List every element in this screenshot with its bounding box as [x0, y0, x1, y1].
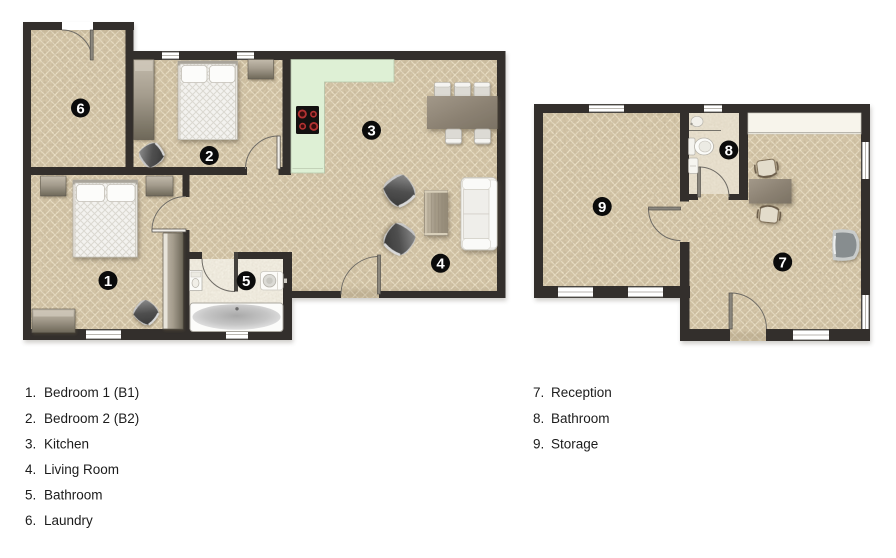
svg-text:Kitchen: Kitchen — [44, 436, 89, 451]
svg-text:2.: 2. — [25, 411, 36, 426]
svg-text:Bedroom 1 (B1): Bedroom 1 (B1) — [44, 385, 139, 400]
svg-text:Reception: Reception — [551, 385, 612, 400]
svg-text:4: 4 — [436, 256, 445, 273]
svg-text:6.: 6. — [25, 513, 36, 528]
svg-text:1: 1 — [104, 273, 112, 290]
svg-text:9.: 9. — [533, 436, 544, 451]
svg-text:Storage: Storage — [551, 436, 598, 451]
svg-text:Living Room: Living Room — [44, 462, 119, 477]
svg-text:Bathroom: Bathroom — [551, 411, 610, 426]
svg-text:9: 9 — [598, 199, 606, 216]
svg-text:5.: 5. — [25, 488, 36, 503]
svg-text:3: 3 — [367, 123, 375, 140]
svg-text:6: 6 — [76, 100, 84, 117]
svg-text:3.: 3. — [25, 436, 36, 451]
svg-text:1.: 1. — [25, 385, 36, 400]
svg-text:5: 5 — [242, 273, 250, 290]
svg-text:Bathroom: Bathroom — [44, 488, 103, 503]
svg-text:Laundry: Laundry — [44, 513, 93, 528]
svg-text:7.: 7. — [533, 385, 544, 400]
svg-text:7: 7 — [779, 254, 787, 271]
svg-text:8: 8 — [725, 142, 733, 159]
svg-text:Bedroom 2 (B2): Bedroom 2 (B2) — [44, 411, 139, 426]
svg-text:4.: 4. — [25, 462, 36, 477]
svg-text:2: 2 — [205, 148, 213, 165]
svg-text:8.: 8. — [533, 411, 544, 426]
